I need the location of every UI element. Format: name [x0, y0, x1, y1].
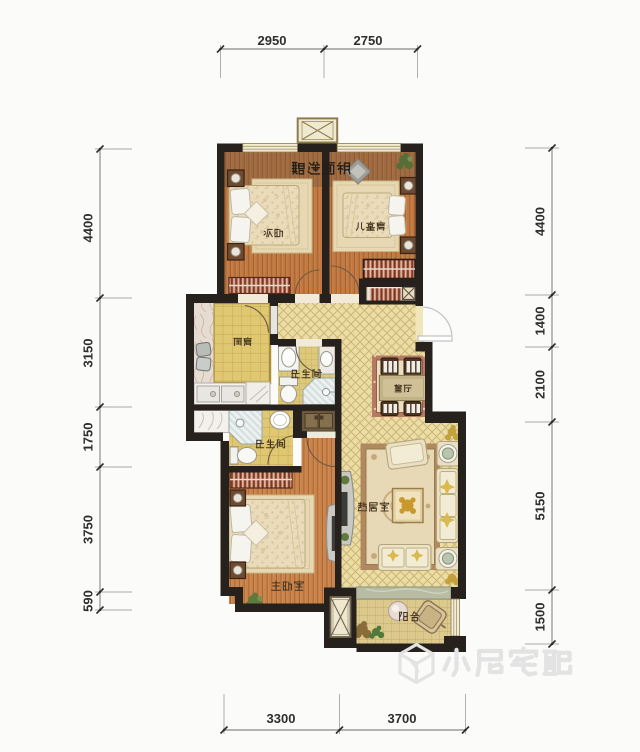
svg-text:3750: 3750 [81, 515, 96, 544]
svg-text:590: 590 [81, 590, 96, 612]
svg-text:3300: 3300 [267, 711, 296, 726]
svg-text:5150: 5150 [533, 492, 548, 521]
svg-text:2750: 2750 [354, 33, 383, 48]
svg-text:4400: 4400 [81, 214, 96, 243]
svg-text:1750: 1750 [81, 423, 96, 452]
svg-text:2100: 2100 [533, 370, 548, 399]
svg-text:2950: 2950 [258, 33, 287, 48]
svg-text:1500: 1500 [533, 603, 548, 632]
svg-text:3150: 3150 [81, 339, 96, 368]
svg-text:3700: 3700 [388, 711, 417, 726]
svg-text:4400: 4400 [533, 207, 548, 236]
svg-text:1400: 1400 [533, 307, 548, 336]
